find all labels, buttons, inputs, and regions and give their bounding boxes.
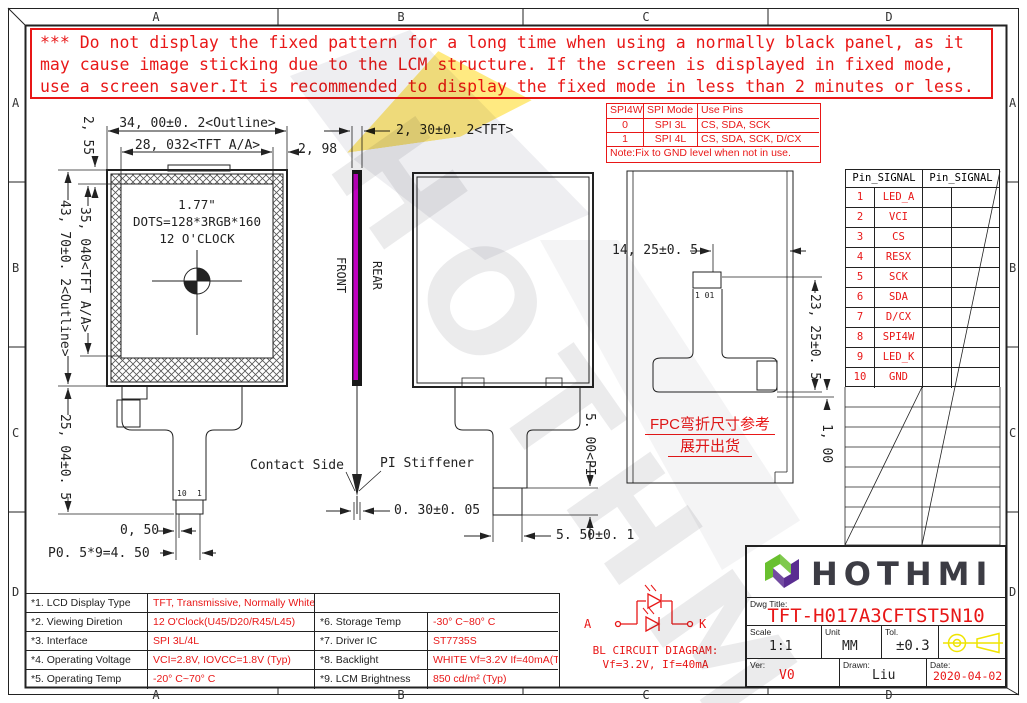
brand-name: HOTHMI [811, 555, 993, 593]
spi-col-header-2: SPI Mode [644, 104, 698, 119]
grid-col-a-bottom: A [150, 688, 162, 702]
ver-value: V0 [779, 668, 795, 683]
grid-row-d-right: D [1009, 585, 1016, 599]
date-cell: Date: 2020-04-02 [927, 659, 1005, 686]
pin-7-number: 7 [846, 308, 875, 328]
pin-9-number: 9 [846, 348, 875, 368]
unit-label: Unit [825, 627, 840, 637]
pin-10-signal: GND [875, 368, 923, 388]
pi-stiffener-label: PI Stiffener [380, 456, 474, 471]
grid-row-b-left: B [12, 261, 19, 275]
scale-label: Scale [750, 627, 771, 637]
drawn-cell: Drawn: Liu [840, 659, 927, 686]
grid-col-c-top: C [640, 10, 652, 24]
pin-signal-table: Pin_SIGNAL Pin_SIGNAL 1 LED_A 2 VCI 3 CS… [845, 169, 1000, 387]
drawing-sheet: A B C D A B C D A B C D A B C D *** Do n… [0, 0, 1027, 703]
hothmi-logo-icon [759, 550, 805, 596]
panel-dots-label: DOTS=128*3RGB*160 [117, 214, 277, 229]
front-connector-pin1-label: 1 [197, 489, 202, 498]
tol-label: Tol. [885, 627, 898, 637]
dim-connector-height: 5. 00<PI> [582, 413, 597, 483]
pin-8-number: 8 [846, 328, 875, 348]
pin-6-number: 6 [846, 288, 875, 308]
unit-cell: Unit MM [822, 626, 882, 659]
spi-row2-bit: 1 [607, 133, 644, 147]
spi-col-header-3: Use Pins [698, 104, 819, 119]
pin-table-empty-cell [923, 268, 952, 288]
grid-row-b-right: B [1009, 261, 1016, 275]
dim-outline-width: 34, 00±0. 2<Outline> [100, 116, 295, 131]
pin-table-empty-cell [923, 208, 952, 228]
pin-table-empty-cell [952, 348, 999, 368]
spec-1-value: TFT, Transmissive, Normally White [148, 594, 315, 613]
grid-row-a-left: A [12, 96, 19, 110]
grid-row-c-left: C [12, 426, 19, 440]
dim-active-area-height: 35, 040<TFT A/A> [77, 207, 92, 332]
spi-row2-mode: SPI 4L [644, 133, 698, 147]
spec-7-value: ST7735S [428, 632, 558, 651]
pin-table-empty-cell [952, 368, 999, 388]
warning-line-2: may cause image sticking due to the LCM … [40, 54, 983, 76]
grid-col-d-top: D [883, 10, 895, 24]
warning-line-3: use a screen saver.It is recommended to … [40, 76, 983, 98]
pin-3-number: 3 [846, 228, 875, 248]
spec-2-value: 12 O'Clock(U45/D20/R45/L45) [148, 613, 315, 632]
pin-4-signal: RESX [875, 248, 923, 268]
drawn-label: Drawn: [843, 660, 870, 670]
title-block: HOTHMI Dwg Title: TFT-H017A3CFTST5N10 Sc… [745, 545, 1007, 688]
warning-line-1: *** Do not display the fixed pattern for… [40, 32, 983, 54]
pin-table-empty-cell [952, 188, 999, 208]
spec-2-label: *2. Viewing Diretion [26, 613, 148, 632]
scale-cell: Scale 1:1 [747, 626, 822, 659]
pin-table-empty-cell [923, 288, 952, 308]
spec-9-label: *9. LCM Brightness [315, 670, 428, 689]
unit-value: MM [842, 639, 858, 654]
ver-cell: Ver: V0 [747, 659, 840, 686]
grid-row-d-left: D [12, 585, 19, 599]
pin-1-signal: LED_A [875, 188, 923, 208]
spi-row2-pins: CS, SDA, SCK, D/CX [698, 133, 819, 147]
dwg-title-value: TFT-H017A3CFTST5N10 [747, 605, 1005, 627]
ver-row: Ver: V0 Drawn: Liu Date: 2020-04-02 [747, 659, 1005, 686]
dim-right-margin: 2, 98 [298, 142, 337, 157]
bl-cathode-label: K [699, 617, 706, 631]
spec-5-label: *5. Operating Temp [26, 670, 148, 689]
pin-1-number: 1 [846, 188, 875, 208]
warning-box: *** Do not display the fixed pattern for… [30, 28, 993, 99]
bl-anode-label: A [584, 617, 591, 631]
pin-table-empty-cell [923, 308, 952, 328]
dim-outline-height: 43, 70±0. 2<Outline> [57, 200, 72, 357]
tol-cell: Tol. ±0.3 [882, 626, 939, 659]
dim-fold-height: 23, 25±0. 5 [807, 294, 822, 380]
folded-connector-pins-label: 1 01 [695, 291, 714, 300]
fpc-bend-note-line1: FPC弯折尺寸参考 [645, 413, 775, 435]
pin-table-empty-cell [952, 268, 999, 288]
dim-active-area-width: 28, 032<TFT A/A> [110, 138, 285, 153]
spec-4-label: *4. Operating Voltage [26, 651, 148, 670]
pin-table-empty-cell [923, 328, 952, 348]
pin-table-empty-cell [952, 308, 999, 328]
dwg-title-row: Dwg Title: TFT-H017A3CFTST5N10 [747, 598, 1005, 626]
bl-circuit-subtitle: Vf=3.2V, If=40mA [588, 658, 723, 671]
spec-1-label: *1. LCD Display Type [26, 594, 148, 613]
dim-pitch-total: P0. 5*9=4. 50 [48, 546, 150, 561]
pin-table-empty-cell [952, 228, 999, 248]
spec-empty-cell [315, 594, 558, 613]
dim-top-margin: 2, 55 [80, 116, 95, 155]
contact-side-label: Contact Side [250, 458, 344, 473]
drawn-value: Liu [872, 668, 895, 683]
pin-10-number: 10 [846, 368, 875, 388]
pin-table-empty-cell [923, 228, 952, 248]
grid-col-a-top: A [150, 10, 162, 24]
grid-col-b-top: B [395, 10, 407, 24]
spi-note: Note:Fix to GND level when not in use. [607, 147, 819, 162]
pin-7-signal: D/CX [875, 308, 923, 328]
dim-fpc-length: 25, 04±0. 5 [57, 414, 72, 500]
scale-row: Scale 1:1 Unit MM Tol. ±0.3 [747, 626, 1005, 659]
pin-6-signal: SDA [875, 288, 923, 308]
pin-3-signal: CS [875, 228, 923, 248]
grid-col-b-bottom: B [395, 688, 407, 702]
scale-value: 1:1 [769, 639, 792, 654]
pin-5-number: 5 [846, 268, 875, 288]
dim-pin-pitch: 0, 50 [120, 523, 156, 538]
bl-circuit-title: BL CIRCUIT DIAGRAM: [588, 644, 723, 657]
pin-table-empty-cell [923, 188, 952, 208]
dim-fpc-thickness: 0. 30±0. 05 [394, 503, 480, 518]
pin-table-empty-cell [952, 288, 999, 308]
grid-col-c-bottom: C [640, 688, 652, 702]
pin-8-signal: SPI4W [875, 328, 923, 348]
front-connector-pin10-label: 10 [177, 489, 187, 498]
tol-value: ±0.3 [896, 638, 930, 654]
projection-symbol-icon [941, 631, 1005, 655]
pin-table-empty-cell [923, 368, 952, 388]
spec-6-value: -30° C~80° C [428, 613, 558, 632]
pin-table-empty-cell [952, 208, 999, 228]
spi-mode-table: SPI4W SPI Mode Use Pins 0 SPI 3L CS, SDA… [606, 103, 821, 163]
spec-8-value: WHITE Vf=3.2V If=40mA(Typ) [428, 651, 558, 670]
pin-table-header-right: Pin_SIGNAL [923, 170, 999, 188]
grid-row-a-right: A [1009, 96, 1016, 110]
spec-7-label: *7. Driver IC [315, 632, 428, 651]
spec-3-label: *3. Interface [26, 632, 148, 651]
dim-connector-width: 5. 50±0. 1 [556, 528, 634, 543]
dim-thickness: 2, 30±0. 2<TFT> [396, 123, 513, 138]
side-rear-label: REAR [370, 261, 384, 290]
spi-row1-bit: 0 [607, 119, 644, 133]
spec-9-value: 850 cd/m² (Typ) [428, 670, 558, 689]
panel-size-label: 1.77" [117, 197, 277, 212]
panel-clock-label: 12 O'CLOCK [117, 231, 277, 246]
logo-row: HOTHMI [747, 547, 1005, 598]
spi-row1-mode: SPI 3L [644, 119, 698, 133]
pin-2-signal: VCI [875, 208, 923, 228]
grid-row-c-right: C [1009, 426, 1016, 440]
spec-8-label: *8. Backlight [315, 651, 428, 670]
pin-5-signal: SCK [875, 268, 923, 288]
pin-9-signal: LED_K [875, 348, 923, 368]
date-value: 2020-04-02 [933, 669, 1002, 683]
pin-table-header-left: Pin_SIGNAL [846, 170, 923, 188]
spec-5-value: -20° C~70° C [148, 670, 315, 689]
spec-3-value: SPI 3L/4L [148, 632, 315, 651]
spi-col-header-1: SPI4W [607, 104, 644, 119]
pin-table-empty-cell [923, 248, 952, 268]
side-front-label: FRONT [334, 257, 348, 293]
grid-col-d-bottom: D [883, 688, 895, 702]
pin-table-empty-cell [923, 348, 952, 368]
fpc-bend-note-line2: 展开出货 [668, 435, 752, 457]
spec-4-value: VCI=2.8V, IOVCC=1.8V (Typ) [148, 651, 315, 670]
ver-label: Ver: [750, 660, 765, 670]
spi-row1-pins: CS, SDA, SCK [698, 119, 819, 133]
dim-fold-step: 1, 00 [819, 424, 834, 463]
pin-2-number: 2 [846, 208, 875, 228]
spec-6-label: *6. Storage Temp [315, 613, 428, 632]
spec-table: *1. LCD Display Type TFT, Transmissive, … [25, 593, 560, 688]
pin-table-empty-cell [952, 248, 999, 268]
pin-table-empty-cell [952, 328, 999, 348]
dim-fold-offset: 14, 25±0. 5 [612, 243, 698, 258]
pin-4-number: 4 [846, 248, 875, 268]
